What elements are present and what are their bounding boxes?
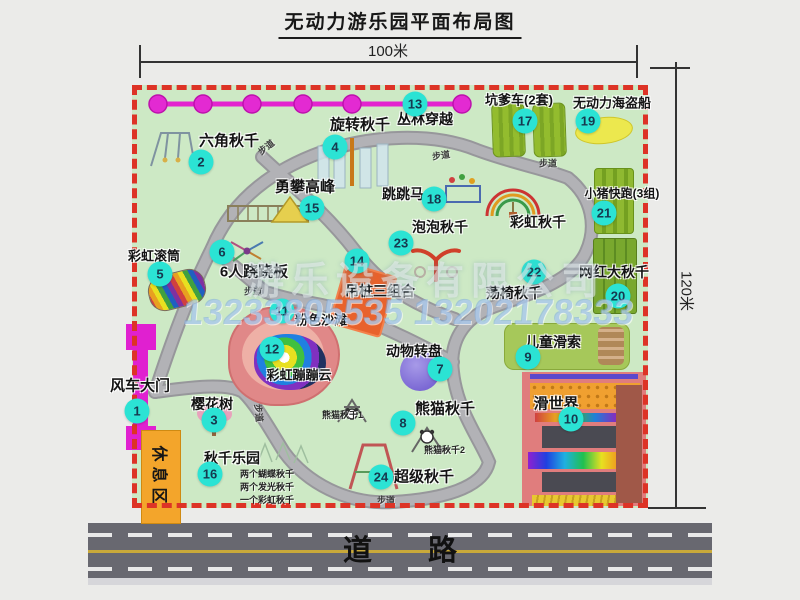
attraction-19-badge: 19 bbox=[576, 109, 601, 134]
attraction-2-badge: 2 bbox=[189, 150, 214, 175]
attraction-7-badge: 7 bbox=[428, 357, 453, 382]
right-dim-tick-top bbox=[650, 67, 690, 69]
attraction-21-badge: 21 bbox=[592, 201, 617, 226]
park-layout-map: 无动力游乐园平面布局图 100米 120米 bbox=[0, 0, 800, 600]
slide-bar-dark-2 bbox=[542, 472, 616, 492]
swing-park-note-2: 两个发光秋千 bbox=[240, 480, 294, 493]
attraction-24-badge: 24 bbox=[369, 465, 394, 490]
attraction-8-label: 熊猫秋千 bbox=[415, 398, 475, 419]
attraction-11-badge: 11 bbox=[270, 299, 295, 324]
walkway-label: 步道 bbox=[431, 147, 451, 162]
top-dim-tick-right bbox=[636, 45, 638, 78]
attraction-17-badge: 17 bbox=[513, 109, 538, 134]
attraction-10-badge: 10 bbox=[559, 407, 584, 432]
right-dim-tick-bottom bbox=[648, 507, 706, 509]
attraction-14-badge: 14 bbox=[345, 249, 370, 274]
top-dim-tick-left bbox=[139, 45, 141, 78]
road-label: 道路 bbox=[88, 523, 712, 580]
rest-area: 休息区 bbox=[141, 430, 181, 524]
attraction-21-label: 小猪快跑(3组) bbox=[585, 185, 660, 202]
swing-park-note-3: 一个彩虹秋千 bbox=[240, 493, 294, 506]
slide-bar-wave bbox=[532, 495, 618, 506]
attraction-18-badge: 18 bbox=[422, 187, 447, 212]
attraction-22-label: 荡椅秋千 bbox=[486, 283, 542, 303]
attraction-15-badge: 15 bbox=[300, 196, 325, 221]
walkway-label: 步道 bbox=[539, 157, 557, 170]
attraction-9-badge: 9 bbox=[516, 345, 541, 370]
rest-area-label: 休息区 bbox=[149, 445, 173, 508]
attraction-15-label: 勇攀高峰 bbox=[275, 176, 335, 197]
attraction-24-label: 超级秋千 bbox=[394, 466, 454, 487]
attraction-8-badge: 8 bbox=[391, 411, 416, 436]
attraction-20-label: 网红大秋千 bbox=[579, 262, 649, 282]
attraction-6-label: 6人跷跷板 bbox=[220, 261, 288, 282]
walkway-label: 步道 bbox=[244, 285, 262, 298]
attraction-20-badge: 20 bbox=[606, 284, 631, 309]
attraction-14-label: 吊桩三组合 bbox=[345, 281, 415, 301]
attraction-23-label: 泡泡秋千 bbox=[412, 217, 468, 237]
pit-car-track-2 bbox=[532, 102, 567, 157]
slide-tower-column bbox=[616, 385, 642, 503]
attraction-17-label: 坑爹车(2套) bbox=[485, 90, 553, 109]
attraction-3-badge: 3 bbox=[202, 408, 227, 433]
walkway-label: 步道 bbox=[252, 403, 267, 422]
attraction-5-badge: 5 bbox=[148, 262, 173, 287]
attraction-4-badge: 4 bbox=[323, 135, 348, 160]
panda-swing-2-note: 熊猫秋千2 bbox=[424, 443, 465, 456]
attraction-11-label: 粉色沙滩 bbox=[295, 310, 347, 329]
zipline-tower bbox=[598, 327, 624, 365]
attraction-4-label: 旋转秋千 bbox=[330, 114, 390, 135]
slide-bar-rainbow bbox=[528, 452, 620, 469]
windmill-gate-top bbox=[126, 324, 156, 350]
attraction-18-label: 跳跳马 bbox=[382, 184, 424, 204]
attraction-12-label: 彩虹蹦蹦云 bbox=[266, 365, 331, 384]
attraction-1-label: 风车大门 bbox=[110, 375, 170, 396]
attraction-12-badge: 12 bbox=[260, 337, 285, 362]
height-dimension-label: 120米 bbox=[677, 271, 698, 311]
page-title: 无动力游乐园平面布局图 bbox=[278, 7, 521, 39]
attraction-23-badge: 23 bbox=[389, 231, 414, 256]
road: 道路 bbox=[88, 521, 712, 580]
swing-park-note-1: 两个蝴蝶秋千 bbox=[240, 467, 294, 480]
attraction-16-badge: 16 bbox=[198, 462, 223, 487]
slide-bar-purple bbox=[530, 374, 638, 379]
width-dimension-label: 100米 bbox=[368, 40, 408, 61]
rainbow-swing-label: 彩虹秋千 bbox=[510, 212, 566, 232]
attraction-1-badge: 1 bbox=[125, 399, 150, 424]
slide-bar-dark-1 bbox=[542, 426, 616, 448]
top-dimension-line bbox=[140, 61, 637, 63]
attraction-2-label: 六角秋千 bbox=[199, 130, 259, 151]
attraction-6-badge: 6 bbox=[210, 240, 235, 265]
walkway-label: 步道 bbox=[377, 494, 395, 507]
panda-swing-1-note: 熊猫秋千1 bbox=[322, 408, 363, 421]
road-shoulder bbox=[88, 578, 712, 585]
attraction-13-badge: 13 bbox=[403, 92, 428, 117]
attraction-22-badge: 22 bbox=[522, 260, 547, 285]
